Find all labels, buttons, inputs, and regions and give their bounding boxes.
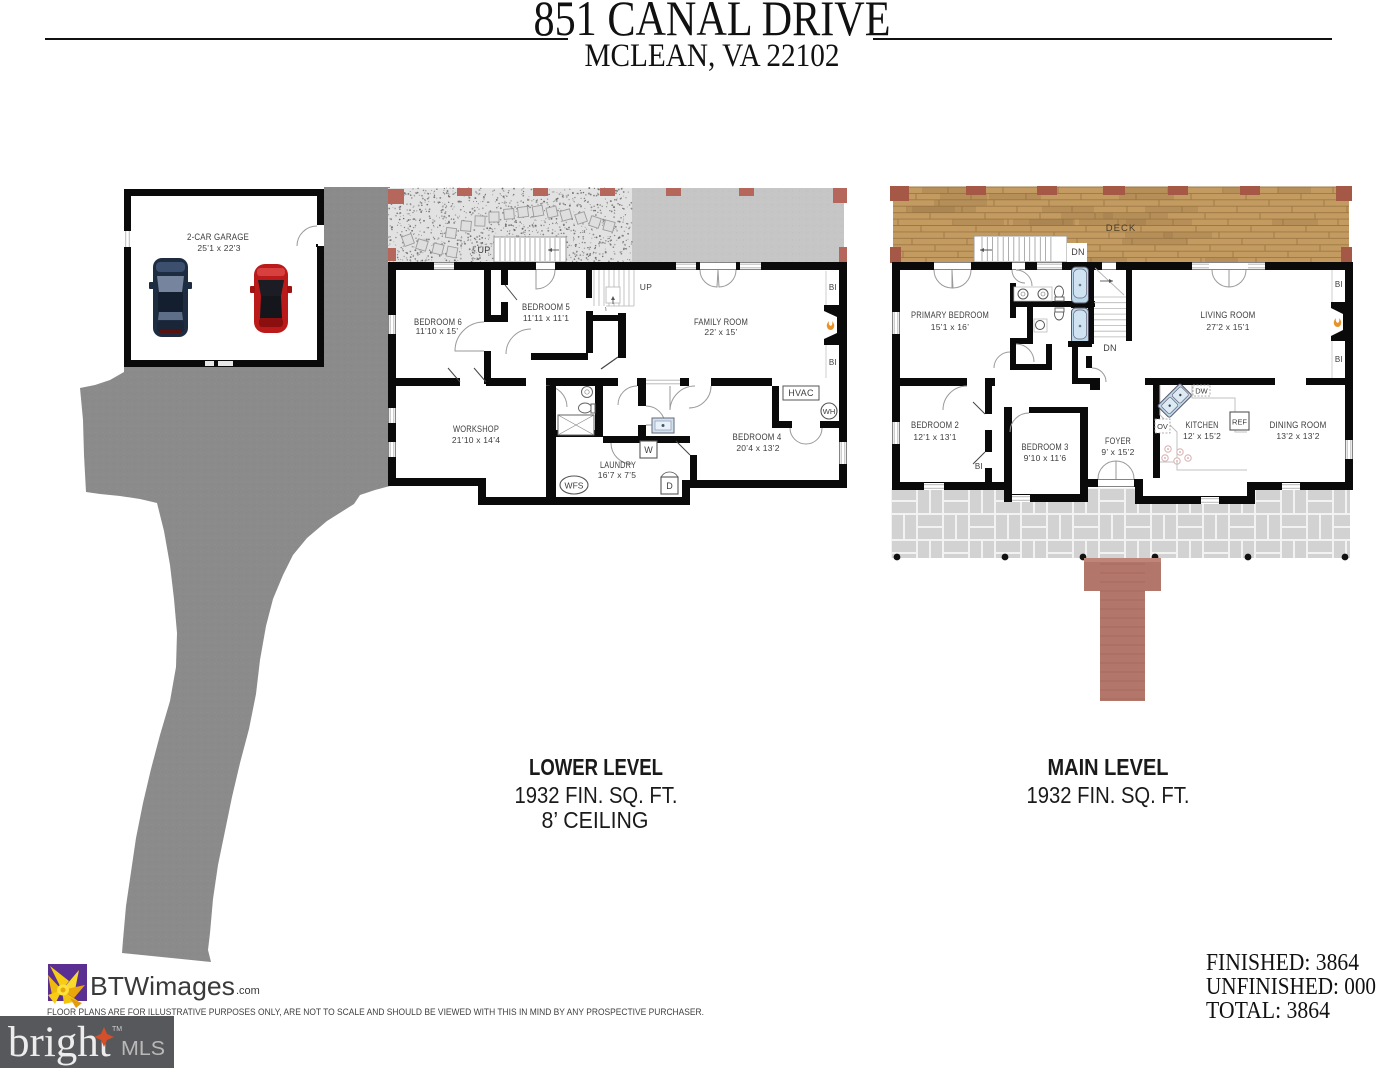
svg-text:15’1 x 16’: 15’1 x 16’	[931, 322, 969, 332]
svg-text:HVAC: HVAC	[788, 388, 814, 398]
svg-text:BTWimages: BTWimages	[90, 971, 235, 1001]
svg-text:21’10 x 14’4: 21’10 x 14’4	[452, 435, 500, 445]
svg-text:TM: TM	[112, 1026, 122, 1033]
svg-text:BI: BI	[975, 462, 983, 471]
svg-text:DW: DW	[1195, 387, 1208, 396]
svg-text:12’ x 15’2: 12’ x 15’2	[1183, 431, 1221, 441]
svg-text:DN: DN	[1071, 247, 1085, 257]
svg-text:16’7 x 7’5: 16’7 x 7’5	[598, 470, 636, 480]
svg-text:27’2 x 15’1: 27’2 x 15’1	[1206, 322, 1249, 332]
svg-text:MLS: MLS	[121, 1038, 165, 1060]
svg-text:BEDROOM 5: BEDROOM 5	[522, 302, 570, 312]
svg-text:LOWER LEVEL: LOWER LEVEL	[529, 754, 663, 780]
svg-text:LIVING ROOM: LIVING ROOM	[1201, 310, 1256, 320]
svg-text:MAIN LEVEL: MAIN LEVEL	[1048, 754, 1169, 780]
svg-text:bright: bright	[8, 1019, 111, 1066]
svg-text:W: W	[644, 445, 653, 455]
svg-text:UNFINISHED: 000: UNFINISHED: 000	[1206, 974, 1376, 1000]
svg-text:WORKSHOP: WORKSHOP	[453, 424, 499, 434]
svg-text:BI: BI	[1335, 280, 1343, 289]
svg-text:22’ x 15’: 22’ x 15’	[704, 327, 737, 337]
svg-text:9’10 x 11’6: 9’10 x 11’6	[1024, 453, 1067, 463]
svg-text:DINING ROOM: DINING ROOM	[1270, 420, 1327, 430]
svg-text:WH: WH	[823, 407, 836, 416]
svg-text:FOYER: FOYER	[1105, 436, 1131, 446]
svg-text:1932 FIN. SQ. FT.: 1932 FIN. SQ. FT.	[1027, 782, 1190, 808]
svg-text:TOTAL: 3864: TOTAL: 3864	[1206, 998, 1330, 1024]
svg-text:OV: OV	[1157, 422, 1168, 431]
svg-text:BI: BI	[829, 358, 837, 367]
svg-text:FINISHED: 3864: FINISHED: 3864	[1206, 950, 1359, 976]
svg-text:BI: BI	[1335, 355, 1343, 364]
svg-text:8’ CEILING: 8’ CEILING	[542, 807, 649, 833]
svg-text:FAMILY ROOM: FAMILY ROOM	[694, 317, 748, 327]
svg-text:UP: UP	[640, 282, 652, 292]
svg-text:BEDROOM 2: BEDROOM 2	[911, 420, 959, 430]
svg-text:BI: BI	[829, 283, 837, 292]
svg-text:D: D	[666, 481, 673, 491]
svg-text:BEDROOM 4: BEDROOM 4	[733, 432, 782, 442]
svg-text:DECK: DECK	[1106, 223, 1136, 234]
svg-text:11’10 x 15’: 11’10 x 15’	[416, 326, 459, 336]
svg-text:DN: DN	[1103, 343, 1117, 353]
svg-text:WFS: WFS	[565, 481, 584, 491]
svg-text:FLOOR PLANS ARE FOR ILLUSTRATI: FLOOR PLANS ARE FOR ILLUSTRATIVE PURPOSE…	[47, 1007, 704, 1017]
svg-text:BEDROOM 3: BEDROOM 3	[1022, 442, 1069, 452]
svg-text:13’2 x 13’2: 13’2 x 13’2	[1276, 431, 1319, 441]
svg-text:MCLEAN, VA 22102: MCLEAN, VA 22102	[585, 38, 840, 74]
svg-text:UP: UP	[477, 245, 490, 255]
svg-text:20’4 x 13’2: 20’4 x 13’2	[736, 443, 779, 453]
svg-text:2-CAR GARAGE: 2-CAR GARAGE	[187, 232, 249, 242]
svg-text:9’ x 15’2: 9’ x 15’2	[1101, 447, 1134, 457]
svg-text:1932 FIN. SQ. FT.: 1932 FIN. SQ. FT.	[515, 782, 678, 808]
svg-text:11’11 x 11’1: 11’11 x 11’1	[523, 313, 569, 323]
svg-text:PRIMARY BEDROOM: PRIMARY BEDROOM	[911, 310, 989, 320]
svg-text:KITCHEN: KITCHEN	[1186, 420, 1219, 430]
svg-text:25’1 x 22’3: 25’1 x 22’3	[197, 243, 240, 253]
svg-text:LAUNDRY: LAUNDRY	[600, 460, 636, 470]
svg-text:.com: .com	[236, 985, 260, 997]
svg-text:12’1 x 13’1: 12’1 x 13’1	[913, 432, 956, 442]
svg-text:REF: REF	[1232, 418, 1247, 427]
